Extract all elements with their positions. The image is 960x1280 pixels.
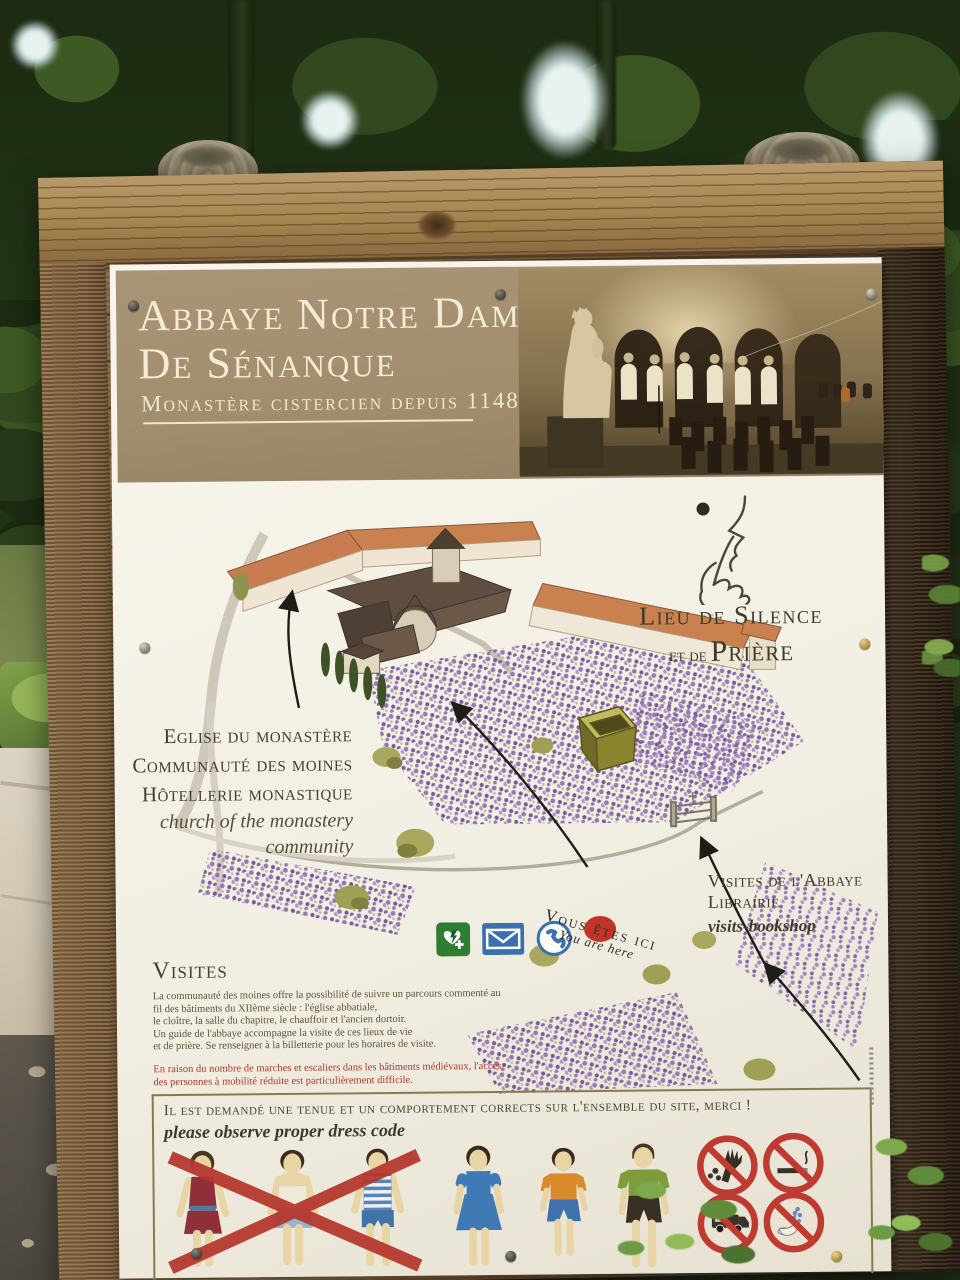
visits-english: visits-bookshop <box>708 915 888 937</box>
screw <box>128 300 139 311</box>
silence-caption: Lieu de Silence et de Prière <box>581 599 882 670</box>
right-side-leaves <box>922 500 960 710</box>
figure-person-tshirt-knee-shorts <box>540 1148 587 1253</box>
silence-line1: Lieu de Silence <box>581 599 881 632</box>
bottom-right-foliage <box>862 1090 960 1280</box>
sky-patch <box>300 90 360 150</box>
information-panel: Abbaye Notre Dame De Sénanque Monastère … <box>110 257 892 1278</box>
screw <box>505 1251 516 1262</box>
dress-code-en: please observe proper dress code <box>164 1120 405 1143</box>
post-top-weathering <box>768 138 834 162</box>
visits-line1: Visites de l'Abbaye <box>708 869 888 892</box>
church-interior-photo <box>518 265 884 476</box>
map-label: Communauté des moines <box>124 749 352 780</box>
screw <box>859 638 870 649</box>
subtitle-underline <box>143 419 473 424</box>
figure-woman-knee-dress <box>454 1145 503 1262</box>
map-label-english: church of the monastery <box>125 807 353 835</box>
screw <box>139 642 150 653</box>
wooden-sign-board: Abbaye Notre Dame De Sénanque Monastère … <box>38 161 960 1280</box>
screw <box>191 1248 202 1259</box>
foreground-leaves-over-panel <box>592 1152 787 1280</box>
silence-line2-small: et de <box>669 645 707 665</box>
defibrillator-icon <box>436 922 470 956</box>
mail-icon <box>482 923 524 955</box>
map-label: Hôtellerie monastique <box>125 778 353 809</box>
sign-title-line2: De Sénanque <box>138 340 396 386</box>
visites-body-line: et de prière. Se renseigner à la billett… <box>153 1037 553 1053</box>
not-allowed-figures <box>162 1148 428 1277</box>
sign-top-rail <box>38 161 945 267</box>
screw <box>866 288 877 299</box>
dress-code-fr: Il est demandé une tenue et un comportem… <box>164 1095 864 1120</box>
sky-patch <box>520 40 610 160</box>
map-labels-left: Eglise du monastère Communauté des moine… <box>124 720 353 861</box>
sky-patch <box>10 20 60 70</box>
visites-heading: Visites <box>152 954 552 985</box>
visits-line2: Librairie <box>708 890 888 913</box>
finger-on-lips-icon <box>657 494 808 605</box>
map-label: Eglise du monastère <box>124 720 352 751</box>
screw <box>831 1251 842 1262</box>
photo-of-abbey-sign: Abbaye Notre Dame De Sénanque Monastère … <box>0 0 960 1280</box>
map-label-english: community <box>125 833 353 861</box>
visites-section: Visites La communauté des moines offre l… <box>152 954 553 1088</box>
visits-bookshop-label: Visites de l'Abbaye Librairie visits-boo… <box>708 869 889 937</box>
silence-line2-large: Prière <box>710 634 794 668</box>
sign-title-line1: Abbaye Notre Dame <box>138 290 542 338</box>
screw <box>495 289 506 300</box>
post-top-weathering <box>178 146 236 168</box>
sign-subtitle: Monastère cistercien depuis 1148 <box>141 389 520 416</box>
